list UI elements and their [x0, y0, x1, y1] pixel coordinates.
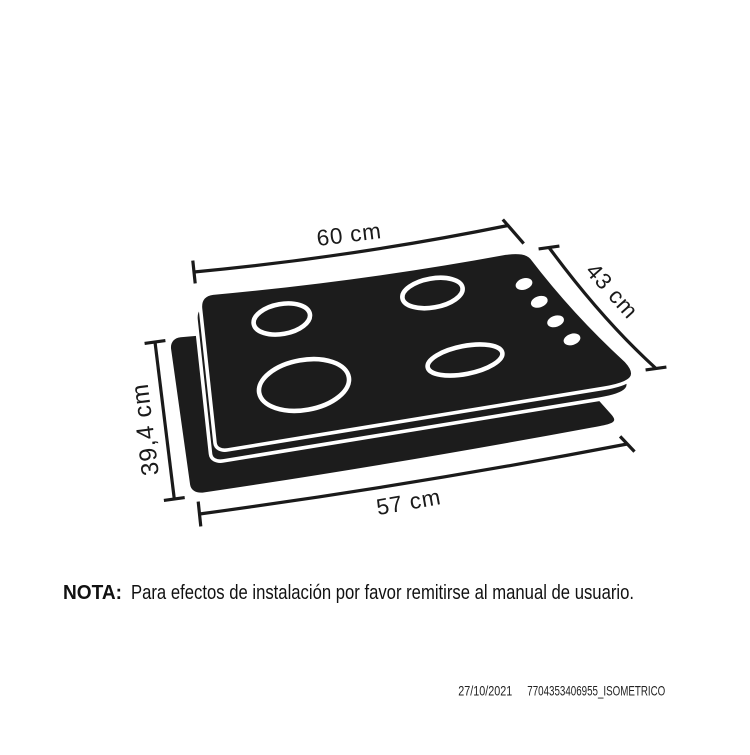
svg-text:7704353406955_ISOMETRICO: 7704353406955_ISOMETRICO: [527, 683, 665, 699]
svg-text:NOTA:: NOTA:: [63, 581, 122, 604]
svg-text:Para efectos de instalación po: Para efectos de instalación por favor re…: [131, 581, 634, 604]
svg-text:27/10/2021: 27/10/2021: [458, 683, 512, 699]
